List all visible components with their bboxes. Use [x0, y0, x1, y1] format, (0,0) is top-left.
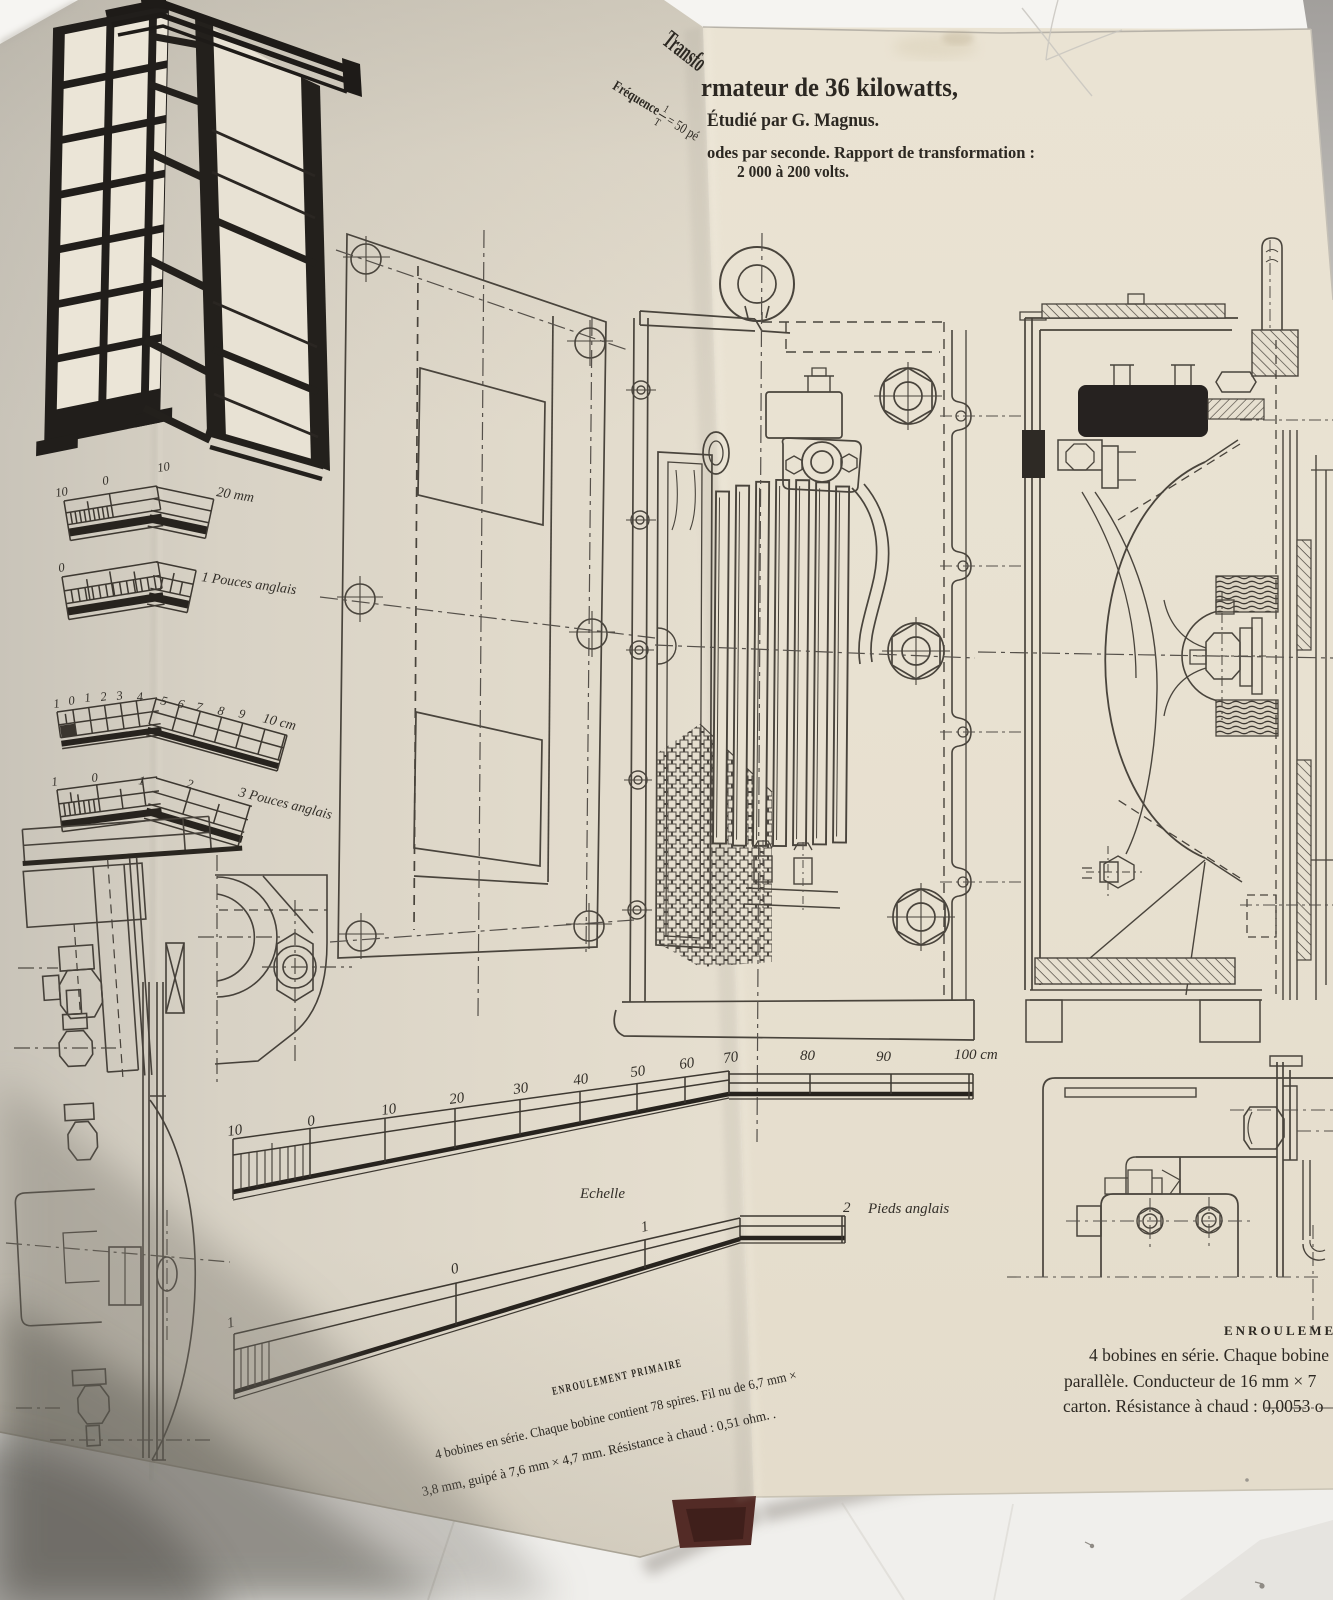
svg-text:2: 2 — [843, 1200, 851, 1216]
svg-text:carton. Résistance à chaud : 0: carton. Résistance à chaud : 0,0053 o — [1063, 1396, 1324, 1416]
svg-text:10: 10 — [380, 1101, 398, 1119]
svg-text:odes par seconde. Rapport de t: odes par seconde. Rapport de transformat… — [707, 143, 1035, 162]
svg-text:parallèle. Conducteur de 16 mm: parallèle. Conducteur de 16 mm × 7 — [1064, 1371, 1317, 1391]
svg-text:rmateur de 36 kilowatts,: rmateur de 36 kilowatts, — [701, 73, 958, 102]
svg-text:4: 4 — [136, 690, 143, 704]
svg-text:2 000 à 200 volts.: 2 000 à 200 volts. — [737, 162, 849, 181]
svg-text:4 bobines en série. Chaque bob: 4 bobines en série. Chaque bobine c — [1089, 1345, 1333, 1365]
svg-text:Étudié par G. Magnus.: Étudié par G. Magnus. — [707, 109, 879, 131]
svg-text:70: 70 — [722, 1049, 740, 1067]
svg-text:90: 90 — [876, 1049, 892, 1065]
svg-text:100 cm: 100 cm — [954, 1047, 998, 1063]
svg-text:50: 50 — [629, 1063, 647, 1081]
svg-text:40: 40 — [572, 1071, 590, 1089]
svg-text:80: 80 — [800, 1048, 816, 1064]
svg-text:60: 60 — [678, 1055, 696, 1073]
svg-text:Echelle: Echelle — [579, 1186, 625, 1202]
svg-text:20: 20 — [448, 1090, 466, 1108]
svg-text:Pieds anglais: Pieds anglais — [867, 1201, 949, 1217]
svg-text:ENROULEMENT: ENROULEMENT — [1224, 1323, 1333, 1338]
svg-text:30: 30 — [511, 1080, 530, 1098]
svg-text:10: 10 — [226, 1122, 244, 1140]
